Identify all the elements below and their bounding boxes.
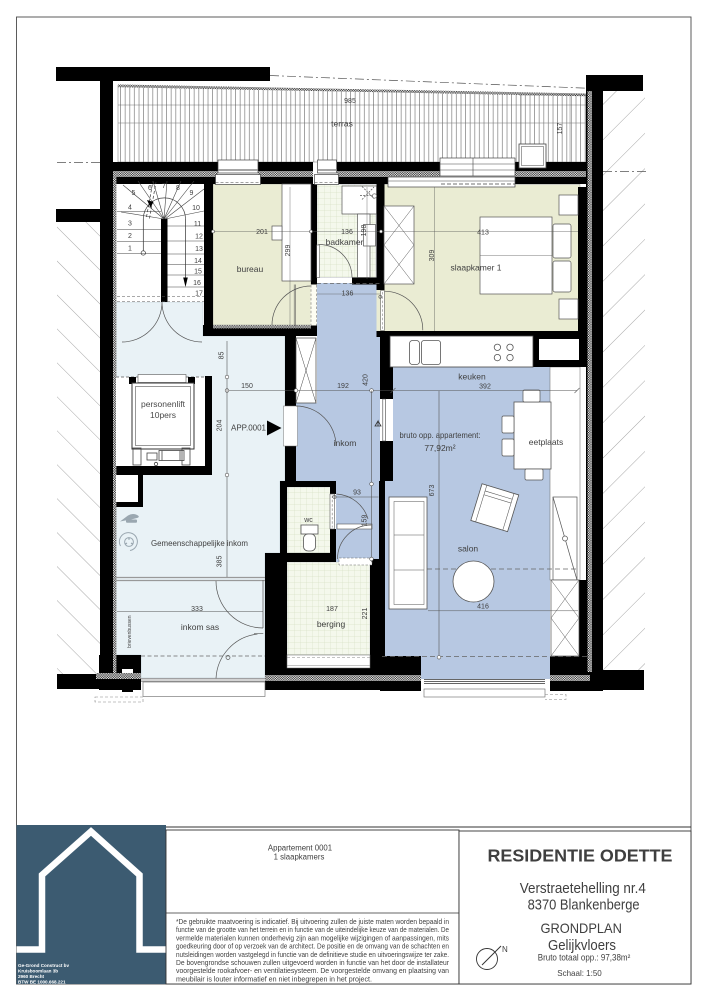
svg-text:De bovengrondse schouwen zulle: De bovengrondse schouwen zullen uitgevoe… bbox=[176, 959, 450, 967]
svg-text:221: 221 bbox=[362, 608, 369, 620]
svg-text:Gelijkvloers: Gelijkvloers bbox=[548, 938, 616, 954]
svg-text:GRONDPLAN: GRONDPLAN bbox=[540, 920, 622, 936]
svg-text:157: 157 bbox=[557, 123, 564, 135]
svg-text:Bruto totaal opp.: 97,38m²: Bruto totaal opp.: 97,38m² bbox=[538, 953, 631, 963]
svg-text:392: 392 bbox=[479, 384, 491, 391]
svg-text:17: 17 bbox=[195, 291, 203, 298]
svg-text:Kruisboomlaan 3b: Kruisboomlaan 3b bbox=[18, 969, 58, 974]
svg-text:12: 12 bbox=[195, 234, 203, 241]
svg-text:bruto opp. appartement:: bruto opp. appartement: bbox=[400, 430, 481, 440]
svg-text:413: 413 bbox=[477, 230, 489, 237]
svg-text:985: 985 bbox=[344, 98, 356, 105]
svg-text:333: 333 bbox=[191, 606, 203, 613]
svg-text:N: N bbox=[502, 945, 508, 954]
svg-text:meubilair is louter informatie: meubilair is louter informatief en niet … bbox=[176, 975, 372, 983]
svg-text:Gemeenschappelijke inkom: Gemeenschappelijke inkom bbox=[151, 538, 248, 548]
svg-text:198: 198 bbox=[361, 225, 368, 237]
svg-text:goedkeuring door of op verzoek: goedkeuring door of op verzoek van de ar… bbox=[176, 943, 449, 951]
svg-text:salon: salon bbox=[458, 544, 479, 554]
svg-text:berging: berging bbox=[317, 619, 346, 629]
svg-text:BTW BE 1000.668.221: BTW BE 1000.668.221 bbox=[18, 980, 66, 985]
svg-text:inkom sas: inkom sas bbox=[181, 622, 219, 632]
svg-text:136: 136 bbox=[342, 291, 354, 298]
svg-text:6: 6 bbox=[148, 185, 152, 192]
svg-text:wc: wc bbox=[303, 517, 313, 524]
svg-text:9: 9 bbox=[190, 190, 194, 197]
svg-text:187: 187 bbox=[326, 606, 338, 613]
svg-text:77,92m²: 77,92m² bbox=[424, 443, 455, 453]
svg-text:136: 136 bbox=[341, 229, 353, 236]
svg-text:Appartement 0001: Appartement 0001 bbox=[268, 843, 332, 852]
svg-text:85: 85 bbox=[219, 352, 226, 360]
svg-text:inkom: inkom bbox=[334, 438, 357, 448]
svg-text:badkamer: badkamer bbox=[326, 237, 364, 247]
svg-text:nutsleidingen worden vastgeleg: nutsleidingen worden vastgelegd in funct… bbox=[176, 951, 449, 959]
svg-text:bureau: bureau bbox=[237, 264, 264, 274]
svg-text:Verstraetehelling nr.4: Verstraetehelling nr.4 bbox=[520, 881, 646, 897]
svg-text:15: 15 bbox=[194, 269, 202, 276]
svg-text:10: 10 bbox=[192, 205, 200, 212]
svg-text:personenlift: personenlift bbox=[141, 399, 186, 409]
svg-text:673: 673 bbox=[429, 485, 436, 497]
svg-text:159: 159 bbox=[362, 515, 369, 527]
svg-text:RESIDENTIE ODETTE: RESIDENTIE ODETTE bbox=[488, 846, 673, 866]
svg-text:204: 204 bbox=[217, 420, 224, 432]
svg-text:150: 150 bbox=[241, 383, 253, 390]
svg-text:brievenbussen: brievenbussen bbox=[127, 615, 133, 648]
svg-text:2960 Brecht: 2960 Brecht bbox=[18, 974, 45, 979]
svg-text:voorgestelde rookafvoer- en ve: voorgestelde rookafvoer- en ventilatiesy… bbox=[176, 967, 449, 975]
svg-text:11: 11 bbox=[194, 221, 201, 228]
svg-text:385: 385 bbox=[217, 556, 224, 568]
svg-text:309: 309 bbox=[429, 250, 436, 262]
svg-text:keuken: keuken bbox=[458, 372, 486, 382]
svg-text:eetplaats: eetplaats bbox=[529, 437, 564, 447]
svg-text:1: 1 bbox=[128, 246, 132, 253]
svg-text:functie van de grootte van het: functie van de grootte van het terrein e… bbox=[176, 926, 449, 934]
svg-text:14: 14 bbox=[194, 258, 202, 265]
svg-text:8: 8 bbox=[176, 185, 180, 192]
svg-text:vermelde materialen kunnen ond: vermelde materialen kunnen onderhevig zi… bbox=[176, 934, 449, 942]
svg-text:terras: terras bbox=[331, 119, 353, 129]
svg-text:7: 7 bbox=[162, 183, 166, 190]
svg-text:8370 Blankenberge: 8370 Blankenberge bbox=[528, 897, 640, 913]
svg-text:416: 416 bbox=[477, 603, 489, 610]
svg-text:slaapkamer 1: slaapkamer 1 bbox=[450, 263, 501, 273]
svg-text:10pers: 10pers bbox=[150, 410, 176, 420]
svg-text:192: 192 bbox=[337, 383, 349, 390]
svg-text:2: 2 bbox=[128, 233, 132, 240]
svg-text:*De gebruikte maatvoering is i: *De gebruikte maatvoering is indicatief.… bbox=[176, 918, 449, 926]
svg-text:Ge-Grond Construct bv: Ge-Grond Construct bv bbox=[18, 963, 69, 968]
svg-text:420: 420 bbox=[363, 374, 370, 386]
svg-text:1 slaapkamers: 1 slaapkamers bbox=[274, 853, 325, 862]
svg-text:201: 201 bbox=[256, 229, 268, 236]
svg-text:93: 93 bbox=[353, 490, 361, 497]
svg-text:APP.0001: APP.0001 bbox=[231, 424, 267, 433]
svg-text:4: 4 bbox=[128, 205, 132, 212]
svg-text:299: 299 bbox=[285, 245, 292, 257]
svg-text:16: 16 bbox=[193, 280, 201, 287]
svg-text:5: 5 bbox=[132, 190, 136, 197]
svg-text:Schaal: 1:50: Schaal: 1:50 bbox=[557, 969, 602, 978]
svg-text:13: 13 bbox=[195, 246, 203, 253]
svg-text:3: 3 bbox=[128, 221, 132, 228]
